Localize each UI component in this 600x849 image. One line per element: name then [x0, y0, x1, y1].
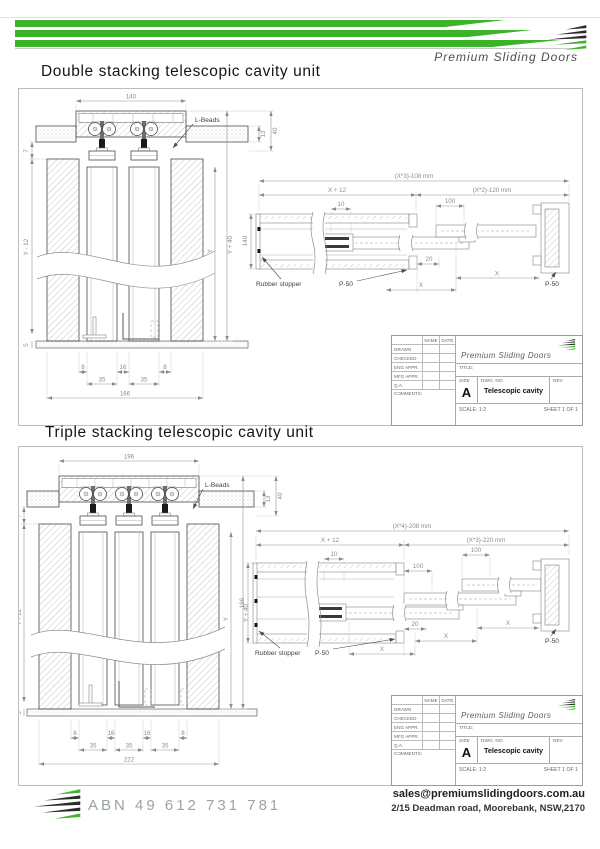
footer-address: 2/15 Deadman road, Moorebank, NSW,2170 [391, 803, 585, 814]
section-title-triple: Triple stacking telescopic cavity unit [45, 424, 314, 442]
dim-y12: Y - 12 [19, 608, 23, 625]
double-elevation: 140 L-Beads 13 40 7 [23, 94, 279, 400]
dim-20: 20 [426, 256, 433, 263]
row-qa: Q.A. [392, 381, 422, 389]
title-block-logo-icon [554, 338, 578, 351]
title-block: NAMEDATE DRAWN CHECKED ENG APPR. MFG APP… [391, 695, 583, 786]
dim-y40: Y + 40 [227, 235, 234, 254]
stripe-2 [15, 30, 532, 37]
dim-top-width: 140 [126, 94, 137, 101]
dim-35-c: 35 [162, 743, 169, 750]
dim-x12: X + 12 [328, 187, 347, 194]
rev-label: REV [550, 377, 582, 384]
dim-35-b: 35 [126, 743, 133, 750]
dim-16-b: 16 [144, 730, 151, 737]
dim-opening: (X*2)-120 mm [473, 187, 512, 194]
title-block-right: Premium Sliding Doors TITLE: SIZEA DWG. … [456, 696, 582, 785]
label-p50-right: P-50 [545, 638, 559, 645]
label-l-beads: L-Beads [205, 482, 230, 489]
triple-elevation: 196 L-Beads 13 40 7 [19, 454, 284, 766]
label-l-beads: L-Beads [195, 117, 220, 124]
stripe-3 [15, 40, 560, 47]
dim-13: 13 [260, 130, 267, 137]
dim-8-left: 8 [73, 730, 77, 737]
footer-email: sales@premiumslidingdoors.com.au [393, 788, 585, 800]
label-rubber-stopper: Rubber stopper [255, 650, 301, 657]
row-checked: CHECKED [392, 714, 422, 722]
footer-logo-icon [30, 786, 82, 822]
dim-total-222: 222 [124, 757, 135, 764]
dim-overall: (X*4)-208 mm [393, 523, 432, 530]
col-date: DATE [439, 336, 455, 344]
title-block: NAMEDATE DRAWN CHECKED ENG APPR. MFG APP… [391, 335, 583, 426]
dim-20: 20 [412, 621, 419, 628]
label-rubber-stopper: Rubber stopper [256, 281, 302, 288]
row-mfg-appr: MFG APPR. [392, 372, 422, 380]
title-block-brand-name: Premium Sliding Doors [461, 351, 551, 360]
header-stripes [0, 0, 600, 50]
title-block-brand-name: Premium Sliding Doors [461, 711, 551, 720]
col-name: NAME [422, 696, 439, 704]
company-logo-icon [543, 23, 589, 52]
dim-100-a: 100 [413, 563, 424, 570]
dim-x2: X [444, 633, 448, 640]
size-label: SIZE [456, 737, 477, 744]
dim-x1: X [380, 646, 384, 653]
row-drawn: DRAWN [392, 345, 422, 353]
stripe-1 [15, 20, 505, 27]
dim-40: 40 [277, 492, 284, 499]
dim-7: 7 [23, 149, 30, 153]
row-checked: CHECKED [392, 354, 422, 362]
dim-13: 13 [265, 495, 272, 502]
label-p50-right: P-50 [545, 281, 559, 288]
dim-x12: X + 12 [321, 537, 340, 544]
dwg-value: Telescopic cavity [478, 386, 549, 395]
dim-35-left: 35 [99, 377, 106, 384]
title-label: TITLE: [456, 724, 582, 737]
dim-5: 5 [23, 343, 30, 347]
row-qa: Q.A. [392, 741, 422, 749]
rev-label: REV [550, 737, 582, 744]
title-block-brand: Premium Sliding Doors [456, 336, 582, 364]
label-p50-left: P-50 [315, 650, 329, 657]
sheet-value: SHEET 1 OF 1 [544, 407, 579, 413]
row-eng-appr: ENG APPR. [392, 723, 422, 731]
dim-x1: X [419, 282, 423, 289]
row-comments: COMMENTS: [392, 390, 455, 396]
label-p50-left: P-50 [339, 281, 353, 288]
dim-x3: X [506, 620, 510, 627]
dim-10: 10 [331, 551, 338, 558]
dim-7: 7 [19, 514, 23, 518]
footer-abn: ABN 49 612 731 781 [88, 797, 281, 814]
dim-5: 5 [19, 711, 23, 715]
dim-100: 100 [445, 198, 456, 205]
col-date: DATE [439, 696, 455, 704]
row-comments: COMMENTS: [392, 750, 455, 756]
section-title-double: Double stacking telescopic cavity unit [41, 63, 321, 81]
dwg-label: DWG. NO. [478, 737, 549, 744]
row-drawn: DRAWN [392, 705, 422, 713]
title-block-brand: Premium Sliding Doors [456, 696, 582, 724]
header-rule [15, 48, 578, 49]
dim-8-right: 8 [181, 730, 185, 737]
size-label: SIZE [456, 377, 477, 384]
size-value: A [456, 745, 477, 760]
sheet-value: SHEET 1 OF 1 [544, 767, 579, 773]
scale-value: SCALE: 1:2 [459, 407, 486, 413]
dim-total-166: 166 [120, 391, 131, 398]
row-mfg-appr: MFG APPR. [392, 732, 422, 740]
drawing-page: Premium Sliding Doors Double stacking te… [0, 0, 600, 849]
size-value: A [456, 385, 477, 400]
dim-overall: (X*3)-108 mm [395, 173, 434, 180]
dim-100-b: 100 [471, 547, 482, 554]
dim-35-a: 35 [90, 743, 97, 750]
double-plan: (X*3)-108 mm X + 12 (X*2)-120 mm 10 100 … [242, 173, 569, 293]
title-block-logo-icon [554, 698, 578, 711]
row-eng-appr: ENG APPR. [392, 363, 422, 371]
dim-x2: X [495, 271, 499, 278]
title-label: TITLE: [456, 364, 582, 377]
dim-35-right: 35 [141, 377, 148, 384]
dim-8-left: 8 [81, 364, 85, 371]
dim-height-140: 140 [242, 235, 249, 246]
col-name: NAME [422, 336, 439, 344]
sheet-double: 140 L-Beads 13 40 7 [18, 88, 583, 426]
sheet-triple: 196 L-Beads 13 40 7 [18, 446, 583, 786]
dim-40: 40 [272, 127, 279, 134]
dim-10: 10 [338, 201, 345, 208]
dim-height-196: 196 [239, 597, 246, 608]
dim-y12: Y - 12 [23, 238, 30, 255]
dim-16-a: 16 [108, 730, 115, 737]
dim-y: Y [207, 249, 214, 253]
dim-y: Y [223, 617, 230, 621]
dwg-value: Telescopic cavity [478, 746, 549, 755]
approval-table: NAMEDATE DRAWN CHECKED ENG APPR. MFG APP… [392, 696, 456, 785]
approval-table: NAMEDATE DRAWN CHECKED ENG APPR. MFG APP… [392, 336, 456, 425]
scale-value: SCALE: 1:2 [459, 767, 486, 773]
dim-opening: (X*3)-220 mm [467, 537, 506, 544]
triple-plan: (X*4)-208 mm X + 12 (X*3)-220 mm 10 100 … [239, 523, 569, 657]
brand-name: Premium Sliding Doors [434, 50, 578, 64]
dim-top-width: 196 [124, 454, 135, 461]
title-block-right: Premium Sliding Doors TITLE: SIZEA DWG. … [456, 336, 582, 425]
dim-8-right: 8 [163, 364, 167, 371]
dim-16: 16 [120, 364, 127, 371]
dwg-label: DWG. NO. [478, 377, 549, 384]
